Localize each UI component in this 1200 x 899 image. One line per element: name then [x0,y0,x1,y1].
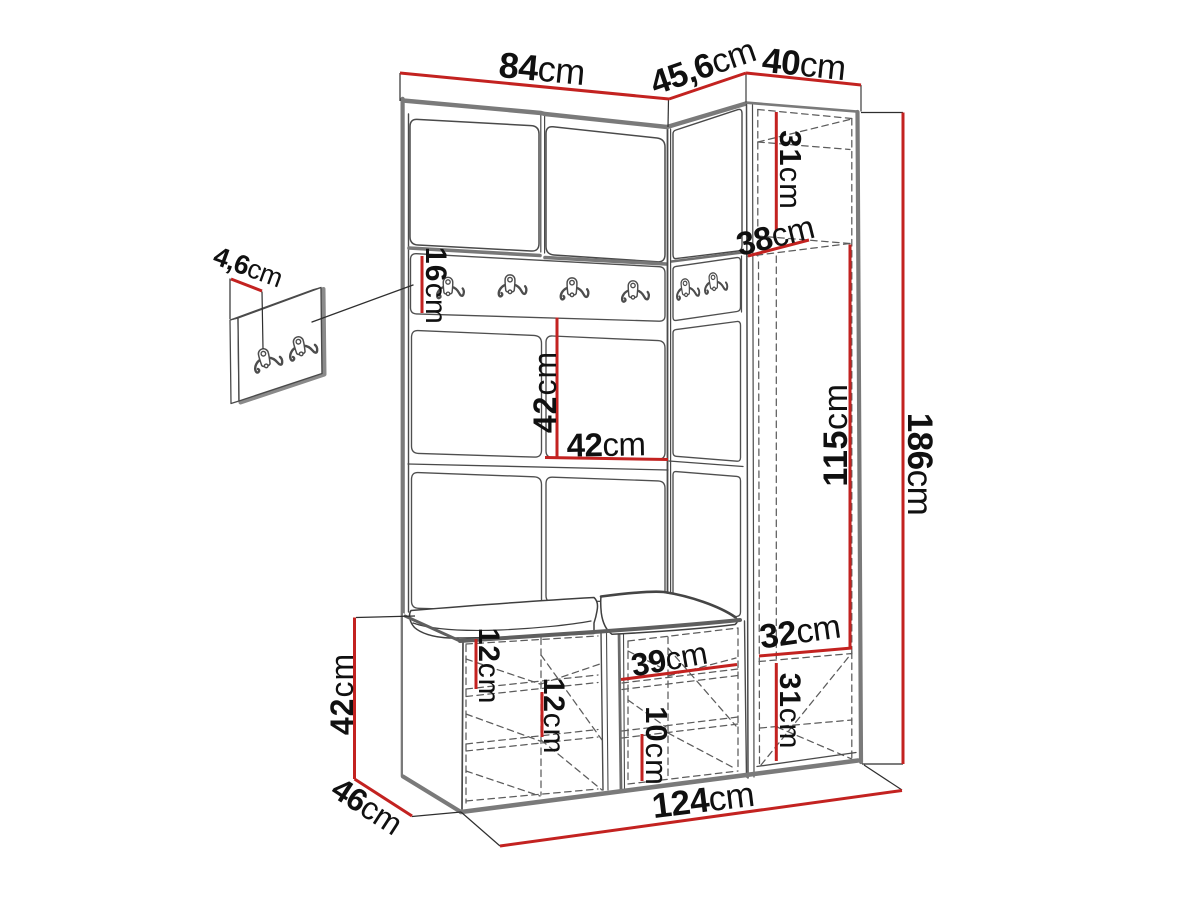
svg-text:10cm: 10cm [640,706,675,786]
svg-text:16cm: 16cm [420,247,453,325]
svg-text:31cm: 31cm [774,673,807,750]
svg-text:42cm: 42cm [527,351,563,433]
svg-text:115cm: 115cm [817,383,855,486]
svg-text:12cm: 12cm [538,678,571,755]
svg-text:84cm: 84cm [497,43,587,92]
svg-text:186cm: 186cm [901,413,940,516]
svg-text:42cm: 42cm [566,425,645,463]
svg-text:12cm: 12cm [473,628,506,705]
svg-text:42cm: 42cm [324,653,360,735]
svg-text:31cm: 31cm [774,130,809,210]
